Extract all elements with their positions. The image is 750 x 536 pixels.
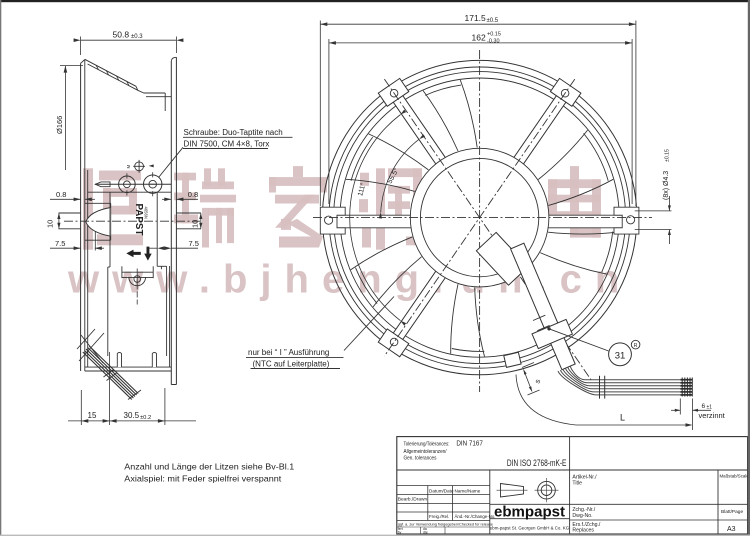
- svg-text:Tolerierung/Tolerances:: Tolerierung/Tolerances:: [404, 442, 450, 448]
- svg-text:7.5: 7.5: [55, 239, 65, 248]
- svg-text:s: s: [533, 378, 543, 385]
- svg-text:Maßstab/Scale: Maßstab/Scale: [720, 474, 750, 479]
- svg-text:(8x) Ø4.3: (8x) Ø4.3: [663, 171, 670, 200]
- svg-text:dte: dte: [423, 530, 428, 534]
- svg-text:Axialspiel: mit Feder spielfre: Axialspiel: mit Feder spielfrei verspann…: [124, 474, 282, 484]
- svg-text:10: 10: [46, 220, 55, 228]
- svg-text:30.5: 30.5: [124, 411, 140, 420]
- svg-text:15: 15: [88, 411, 97, 420]
- svg-text:6: 6: [702, 403, 706, 410]
- svg-text:31: 31: [615, 350, 626, 361]
- svg-text:Blatt/Page: Blatt/Page: [721, 509, 743, 515]
- svg-text:±0.3: ±0.3: [131, 34, 143, 40]
- svg-text:Änd.-Nr./Change-No.: Änd.-Nr./Change-No.: [455, 514, 496, 519]
- svg-text:Schraube: Duo-Taptite nach: Schraube: Duo-Taptite nach: [184, 128, 283, 137]
- svg-text:DIN 7167: DIN 7167: [456, 439, 483, 448]
- svg-text:0.8: 0.8: [56, 190, 66, 199]
- svg-text:Anzahl und Länge der Litzen si: Anzahl und Länge der Litzen siehe Bv-Bl.…: [124, 462, 294, 472]
- svg-text:Ø166: Ø166: [55, 116, 64, 134]
- svg-text:R: R: [634, 343, 638, 349]
- svg-text:nur bei “ I ” Ausführung: nur bei “ I ” Ausführung: [248, 348, 329, 357]
- svg-text:111°: 111°: [356, 182, 367, 197]
- svg-text:ebmpapst: ebmpapst: [494, 505, 565, 521]
- svg-text:by: by: [398, 530, 402, 534]
- svg-text:PAPST: PAPST: [133, 204, 144, 236]
- svg-text:ebm-papst St. Georgen GmbH & C: ebm-papst St. Georgen GmbH & Co. KG: [490, 526, 570, 531]
- svg-text:162: 162: [472, 33, 486, 43]
- svg-text:±0.5: ±0.5: [487, 18, 499, 24]
- svg-text:(NTC auf Leiterplatte): (NTC auf Leiterplatte): [253, 359, 330, 368]
- svg-text:Allgemeintoleranzen/: Allgemeintoleranzen/: [404, 449, 447, 455]
- svg-text:±0.15: ±0.15: [665, 149, 671, 162]
- svg-text:171.5: 171.5: [465, 13, 487, 23]
- svg-text:Datum/Date: Datum/Date: [429, 489, 454, 494]
- svg-text:Bearb./Drawn: Bearb./Drawn: [398, 497, 428, 503]
- svg-text:+0.15: +0.15: [487, 32, 501, 38]
- svg-text:10: 10: [191, 220, 200, 228]
- svg-text:ggf. a. zur Verwendung freigeg: ggf. a. zur Verwendung freigegeben/Check…: [398, 523, 493, 527]
- svg-text:DIN ISO 2768-mK-E: DIN ISO 2768-mK-E: [507, 458, 567, 468]
- svg-text:Title: Title: [572, 481, 582, 487]
- svg-text:7.5: 7.5: [189, 239, 199, 248]
- svg-text:0.8: 0.8: [188, 190, 198, 199]
- svg-text:4656N: 4656N: [144, 207, 149, 219]
- svg-text:-0.30: -0.30: [487, 38, 500, 44]
- svg-text:Freig./Rel.: Freig./Rel.: [429, 514, 449, 519]
- svg-text:verzinnt: verzinnt: [699, 411, 726, 420]
- svg-text:L: L: [620, 413, 625, 423]
- svg-text:www.bjhengrun.cn: www.bjhengrun.cn: [67, 258, 632, 302]
- svg-text:A3: A3: [727, 526, 736, 533]
- svg-text:DIN 7500, CM 4×8, Torx: DIN 7500, CM 4×8, Torx: [184, 139, 270, 148]
- svg-text:50.8: 50.8: [113, 29, 130, 39]
- svg-text:±1: ±1: [707, 405, 713, 411]
- svg-text:Dwg-No.: Dwg-No.: [572, 513, 592, 519]
- svg-text:±0.2: ±0.2: [140, 415, 151, 421]
- svg-text:Name/Name: Name/Name: [455, 489, 481, 494]
- svg-text:Gen. tolerances: Gen. tolerances: [404, 456, 437, 462]
- svg-text:M: M: [126, 165, 131, 169]
- svg-text:Replaces: Replaces: [572, 528, 594, 534]
